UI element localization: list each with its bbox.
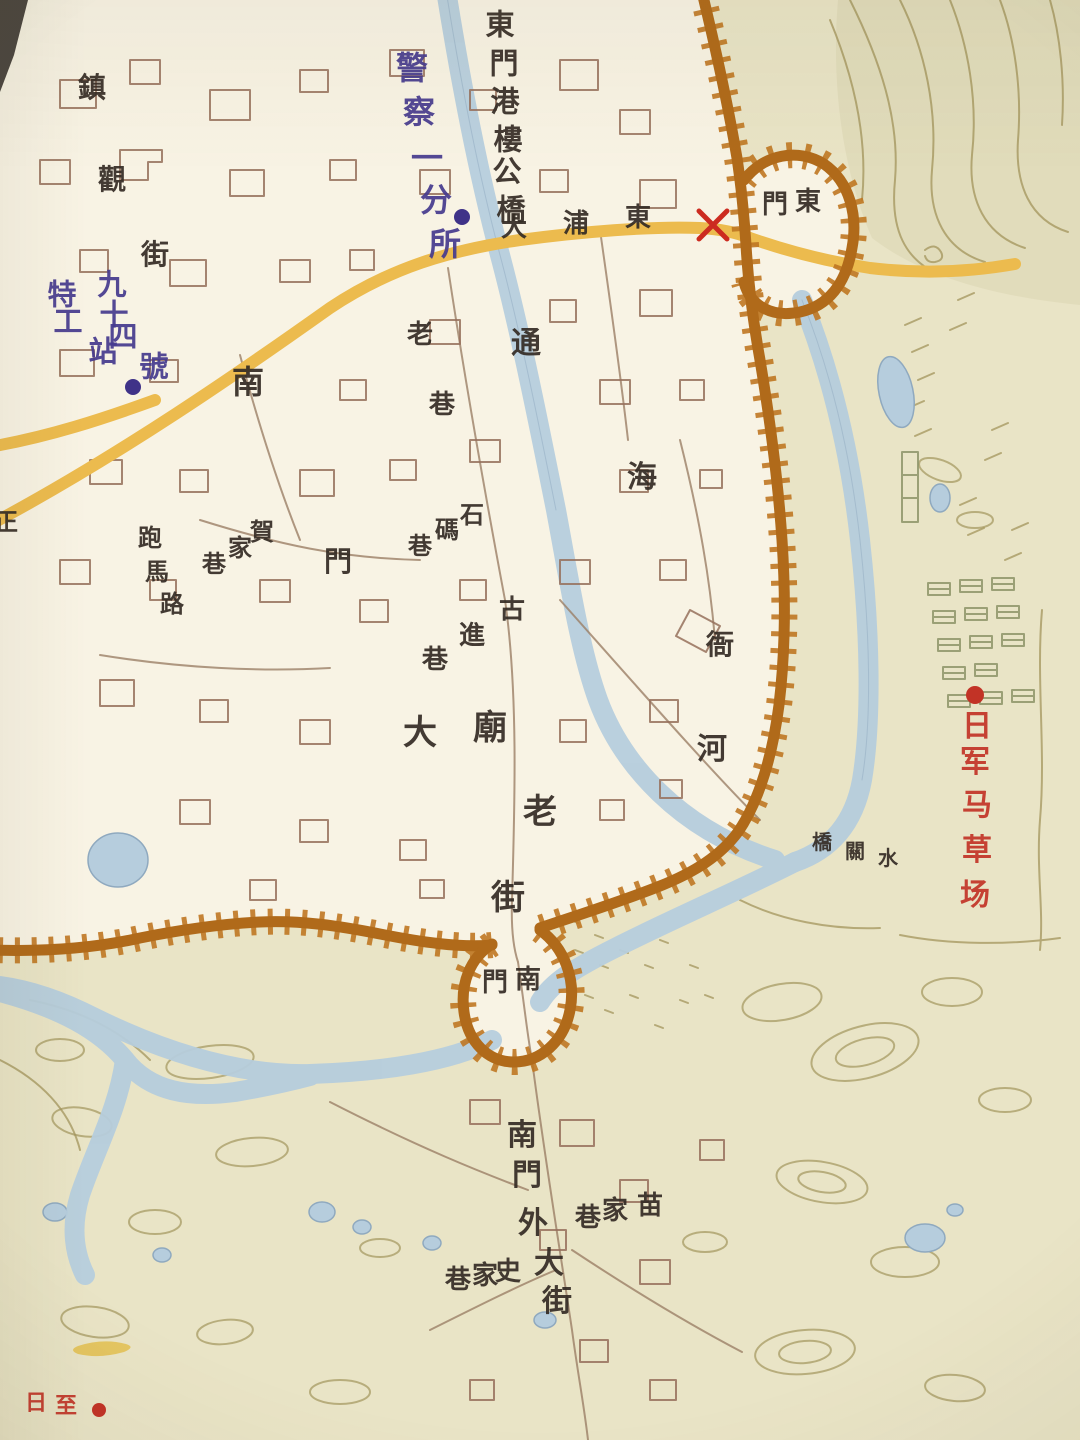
corner-shade xyxy=(836,0,1080,305)
terrain-blobs-shape xyxy=(957,512,993,528)
paddy-symbols-path xyxy=(943,664,997,679)
water-ponds-shape xyxy=(872,353,920,430)
water-ponds-shape xyxy=(309,1202,335,1222)
city-paper-path xyxy=(0,0,784,1062)
corner-shade-path xyxy=(836,0,1080,305)
terrain-blobs-shape xyxy=(833,1032,898,1073)
terrain-blobs-shape xyxy=(215,1135,289,1169)
paddy-symbols-path xyxy=(938,634,1024,651)
terrain-blobs-shape xyxy=(805,1013,925,1092)
horse-field-dot-icon xyxy=(966,686,984,704)
terrain-blobs-shape xyxy=(797,1168,848,1196)
paddy-symbols-path xyxy=(933,606,1019,623)
water-ponds-shape xyxy=(43,1203,67,1221)
streets-path xyxy=(330,1102,528,1190)
terrain-blobs-shape xyxy=(979,1088,1031,1112)
terrain-contours-path xyxy=(905,293,1028,560)
terrain-blobs-shape xyxy=(360,1239,400,1257)
terrain-blobs-shape xyxy=(778,1339,832,1365)
police-station-dot-icon xyxy=(454,209,470,225)
water-ponds-shape xyxy=(947,1204,963,1216)
paint-smudge xyxy=(73,1341,131,1356)
water-ponds-shape xyxy=(930,484,950,512)
terrain-blobs-shape xyxy=(683,1232,727,1252)
paddy-symbols-path xyxy=(948,690,1034,707)
paint-smudge-path xyxy=(73,1341,131,1356)
buildings-path xyxy=(470,1100,724,1400)
legend-dot-icon xyxy=(92,1403,106,1417)
water-rivers-path xyxy=(75,1060,125,1275)
paddy-symbols-path xyxy=(902,452,918,522)
historical-city-map-photo: 警察一分所九十四號特工站東門港樓公橋大浦東門東通海河衙老巷石碼巷門南賀家巷跑馬路… xyxy=(0,0,1080,1440)
special-station-dot-icon xyxy=(125,379,141,395)
terrain-blobs-shape xyxy=(59,1302,131,1341)
terrain-blobs-shape xyxy=(753,1326,856,1379)
terrain-blobs-shape xyxy=(129,1210,181,1234)
terrain-blobs-shape xyxy=(922,978,982,1006)
terrain-blobs-shape xyxy=(924,1372,986,1403)
terrain-blobs-shape xyxy=(773,1154,871,1209)
water-ponds-shape xyxy=(423,1236,441,1250)
paddy-symbols xyxy=(902,452,1034,707)
water-rivers-path xyxy=(795,300,869,862)
water-ponds-shape xyxy=(153,1248,171,1262)
terrain-blobs-shape xyxy=(916,453,964,487)
terrain-contours-path xyxy=(1039,610,1042,950)
map-canvas xyxy=(0,0,1080,1440)
water-ponds-shape xyxy=(353,1220,371,1234)
paddy-symbols-path xyxy=(928,578,1014,595)
water-ponds-shape xyxy=(534,1312,556,1328)
terrain-blobs-shape xyxy=(739,977,824,1026)
streets-path xyxy=(572,1250,742,1352)
terrain-blobs-shape xyxy=(36,1039,84,1061)
water-ponds-shape xyxy=(88,833,148,887)
terrain-blobs-shape xyxy=(310,1380,370,1404)
terrain-blobs-shape xyxy=(196,1317,254,1347)
terrain-contours-path xyxy=(740,900,1060,943)
water-ponds-shape xyxy=(905,1224,945,1252)
